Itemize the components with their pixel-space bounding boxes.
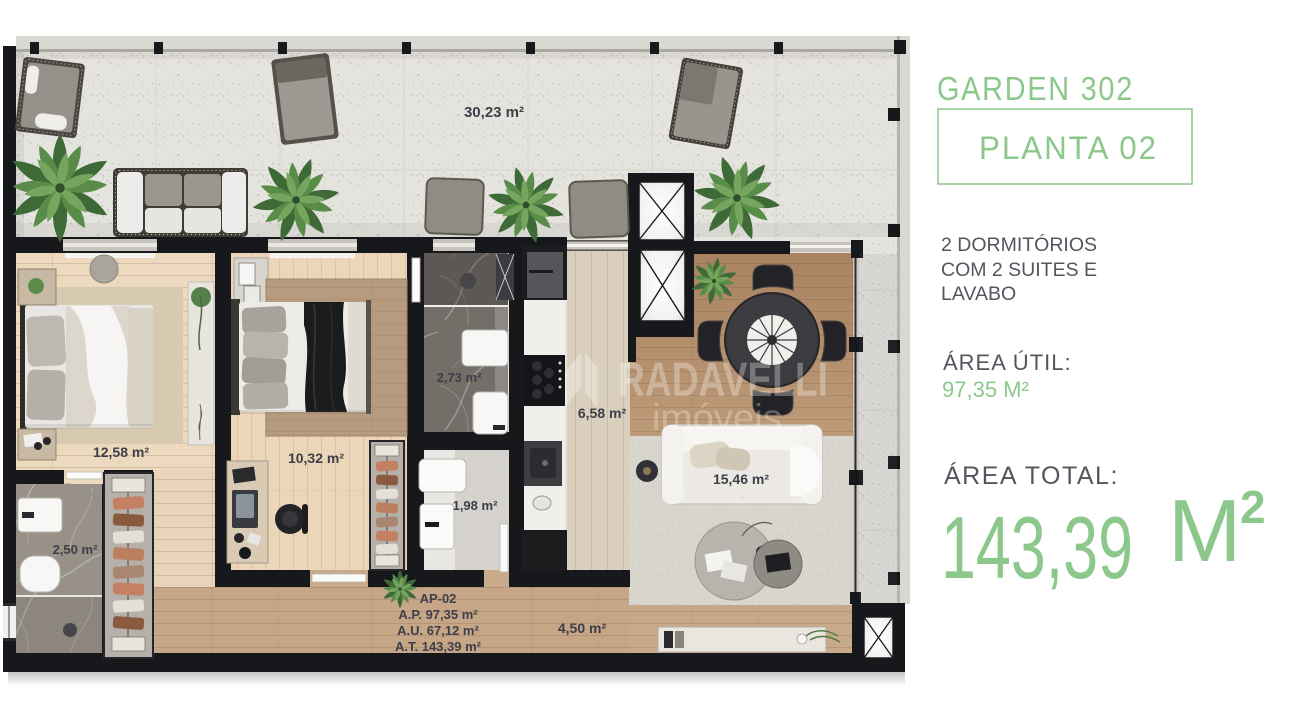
svg-text:A.U. 67,12 m²: A.U. 67,12 m² <box>397 623 479 638</box>
svg-text:PLANTA 02: PLANTA 02 <box>979 130 1158 166</box>
svg-text:ÁREA ÚTIL:: ÁREA ÚTIL: <box>943 350 1072 375</box>
svg-text:M: M <box>1168 481 1241 580</box>
svg-text:10,32 m²: 10,32 m² <box>288 450 344 466</box>
svg-text:4,50 m²: 4,50 m² <box>558 620 607 636</box>
svg-text:97,35 M²: 97,35 M² <box>942 377 1029 402</box>
svg-text:COM 2 SUITES E: COM 2 SUITES E <box>941 259 1097 281</box>
svg-text:2 DORMITÓRIOS: 2 DORMITÓRIOS <box>941 233 1097 256</box>
svg-text:2,50 m²: 2,50 m² <box>53 542 98 557</box>
svg-text:AP-02: AP-02 <box>420 591 457 606</box>
svg-text:A.T. 143,39 m²: A.T. 143,39 m² <box>395 639 482 654</box>
svg-text:imóveis: imóveis <box>652 397 782 438</box>
svg-text:2: 2 <box>1240 481 1266 533</box>
svg-text:ÁREA TOTAL:: ÁREA TOTAL: <box>944 461 1119 490</box>
svg-text:12,58 m²: 12,58 m² <box>93 444 149 460</box>
svg-text:15,46 m²: 15,46 m² <box>713 471 769 487</box>
svg-text:143,39: 143,39 <box>941 498 1133 597</box>
svg-text:6,58 m²: 6,58 m² <box>578 405 627 421</box>
svg-text:A.P. 97,35 m²: A.P. 97,35 m² <box>398 607 478 622</box>
svg-text:GARDEN 302: GARDEN 302 <box>937 70 1134 107</box>
svg-text:30,23 m²: 30,23 m² <box>464 104 524 121</box>
svg-text:2,73 m²: 2,73 m² <box>437 370 482 385</box>
svg-text:LAVABO: LAVABO <box>941 283 1016 305</box>
svg-text:1,98 m²: 1,98 m² <box>453 498 498 513</box>
